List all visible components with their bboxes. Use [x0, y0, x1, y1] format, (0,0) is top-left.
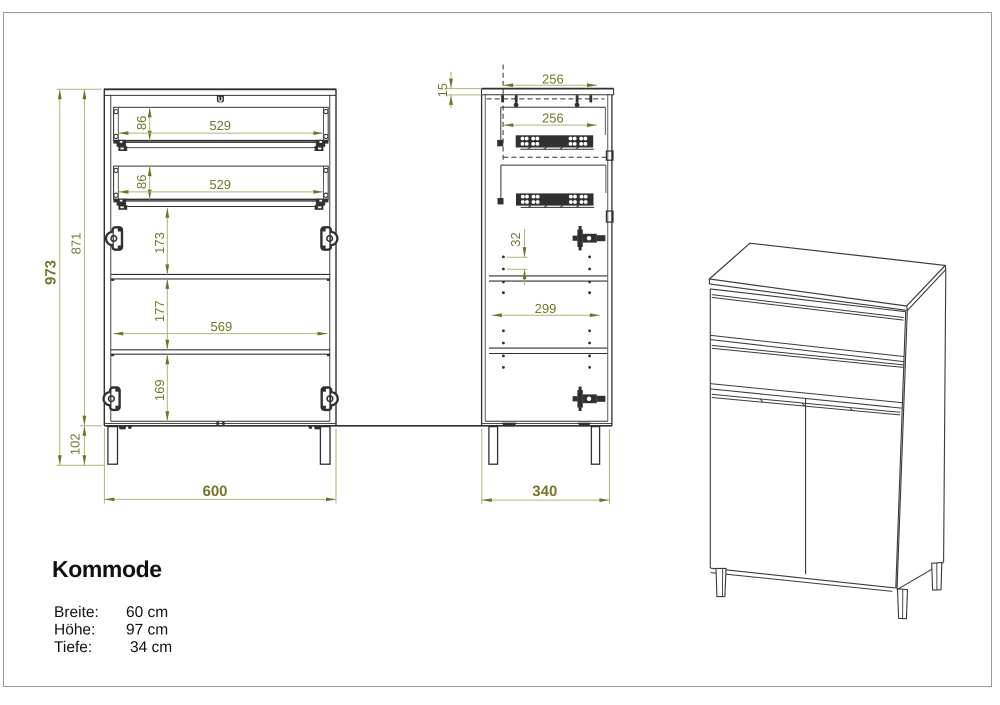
svg-text:871: 871: [68, 233, 83, 255]
svg-text:600: 600: [202, 483, 227, 500]
svg-text:Tiefe:: Tiefe:: [54, 639, 92, 656]
svg-text:256: 256: [542, 110, 564, 125]
svg-text:Höhe:: Höhe:: [54, 622, 95, 639]
svg-text:34 cm: 34 cm: [130, 639, 172, 656]
svg-text:86: 86: [134, 174, 149, 188]
svg-text:173: 173: [152, 232, 167, 254]
svg-text:60 cm: 60 cm: [126, 604, 168, 621]
svg-text:177: 177: [152, 300, 167, 322]
svg-text:Kommode: Kommode: [52, 556, 162, 582]
svg-text:340: 340: [532, 483, 557, 500]
svg-text:529: 529: [209, 177, 231, 192]
svg-text:169: 169: [152, 379, 167, 401]
svg-text:569: 569: [211, 319, 233, 334]
svg-text:86: 86: [134, 116, 149, 130]
svg-text:102: 102: [68, 433, 83, 455]
svg-text:299: 299: [535, 301, 557, 316]
svg-text:Breite:: Breite:: [54, 604, 99, 621]
svg-text:973: 973: [42, 260, 59, 285]
svg-text:32: 32: [508, 232, 523, 246]
svg-text:256: 256: [542, 72, 564, 87]
svg-text:529: 529: [209, 118, 231, 133]
svg-text:97 cm: 97 cm: [126, 622, 168, 639]
svg-text:15: 15: [435, 83, 450, 97]
